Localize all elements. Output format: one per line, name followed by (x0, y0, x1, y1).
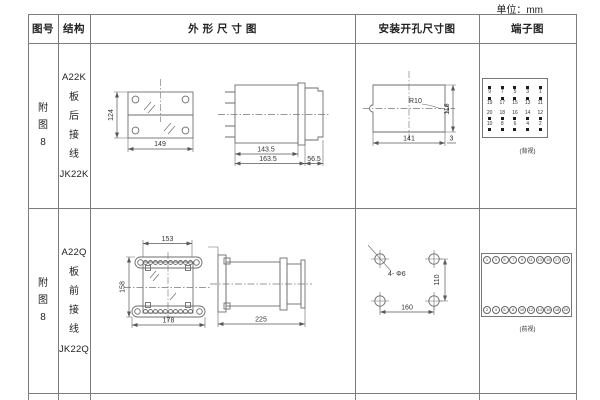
figure-no-row1: 附图8 (28, 43, 58, 208)
wiring-type: 板后接线 (68, 88, 80, 164)
dim-side-total: 163.5 (259, 156, 277, 163)
terminal-row: 19 17 15 13 11 (483, 97, 547, 106)
side-view-dims: 143.5 163.5 56.5 (235, 140, 323, 166)
terminal-diagram-front: 1 3 5 7 9 11 13 15 17 19 2 4 6 8 10 12 1… (481, 253, 572, 317)
dim-bottom-width: 178 (163, 318, 175, 325)
figure-no-text: 附图8 (37, 275, 49, 326)
terminal-row-even: 2 4 6 8 10 12 14 16 18 20 (483, 306, 570, 314)
view-label-front: (前视) (479, 324, 576, 333)
terminal-row: 9 7 5 3 1 (483, 86, 547, 95)
dim-hole-spec: 4- Φ6 (388, 271, 406, 278)
dim-notch-radius: R10 (409, 98, 422, 105)
header-figure-no: 图号 (28, 14, 58, 43)
side-view (208, 247, 312, 312)
header-structure: 结构 (58, 14, 90, 43)
dim-front-width: 149 (154, 141, 166, 148)
front-view-dims: 124 149 (108, 92, 193, 152)
terminal-diagram-rear: 9 7 5 3 1 19 17 15 13 11 20 18 16 14 12 (482, 78, 548, 138)
dim-side-body: 143.5 (257, 147, 275, 154)
wiring-type: 板前接线 (68, 263, 80, 339)
header-outline: 外 形 尺 寸 图 (90, 14, 355, 43)
dim-front-height: 158 (120, 281, 127, 293)
dim-edge-gap: 3 (450, 136, 454, 143)
structure-row1: A22K 板后接线 JK22K (58, 43, 90, 208)
terminal-number: 1 (483, 256, 491, 264)
outline-drawing-row1: 124 149 143.5 163.5 56.5 (90, 43, 355, 208)
side-view (218, 83, 330, 145)
dim-front-height: 124 (108, 109, 115, 121)
model-bottom: JK22K (60, 169, 89, 180)
terminal-cell-row1: 9 7 5 3 1 19 17 15 13 11 20 18 16 14 12 (479, 43, 576, 208)
front-view (128, 79, 193, 138)
dim-side-length: 225 (255, 317, 267, 324)
front-view (124, 252, 211, 323)
terminal-number: 9 (488, 90, 491, 95)
dim-hole-height: 110 (434, 274, 441, 285)
model-top: A22K (62, 72, 86, 83)
view-label-rear: (背视) (479, 146, 576, 155)
cutout-dims: R10 141 116 3 (373, 85, 456, 146)
dim-hole-width: 160 (401, 305, 413, 312)
outline-drawing-row2: 153 158 178 225 (90, 208, 355, 393)
terminal-row: 10 8 6 4 2 (483, 122, 547, 131)
header-install: 安装开孔尺寸图 (355, 14, 479, 43)
figure-no-text: 附图8 (37, 100, 49, 151)
dim-cutout-height: 116 (444, 103, 451, 114)
hole-dims: 4- Φ6 110 160 (380, 259, 448, 315)
install-drawing-row1: R10 141 116 3 (355, 43, 479, 208)
model-bottom: JK22Q (59, 344, 89, 355)
terminal-cell-row2: 1 3 5 7 9 11 13 15 17 19 2 4 6 8 10 12 1… (479, 208, 576, 393)
side-view-dims: 225 (218, 308, 305, 327)
install-drawing-row2: 4- Φ6 110 160 (355, 208, 479, 393)
dim-side-rear: 56.5 (307, 156, 321, 163)
figure-no-row2: 附图8 (28, 208, 58, 393)
model-top: A22Q (61, 247, 86, 258)
dim-cutout-width: 141 (403, 136, 415, 143)
terminal-row: 20 18 16 14 12 (483, 111, 547, 120)
structure-row2: A22Q 板前接线 JK22Q (58, 208, 90, 393)
terminal-row-odd: 1 3 5 7 9 11 13 15 17 19 (483, 256, 570, 264)
manual-page: 单位：mm 图号 结构 外 形 尺 寸 图 安装开孔尺寸图 端子图 附图8 A2… (0, 0, 600, 400)
header-terminal: 端子图 (479, 14, 576, 43)
dim-top-width: 153 (162, 236, 174, 243)
panel-cutout (363, 71, 455, 141)
